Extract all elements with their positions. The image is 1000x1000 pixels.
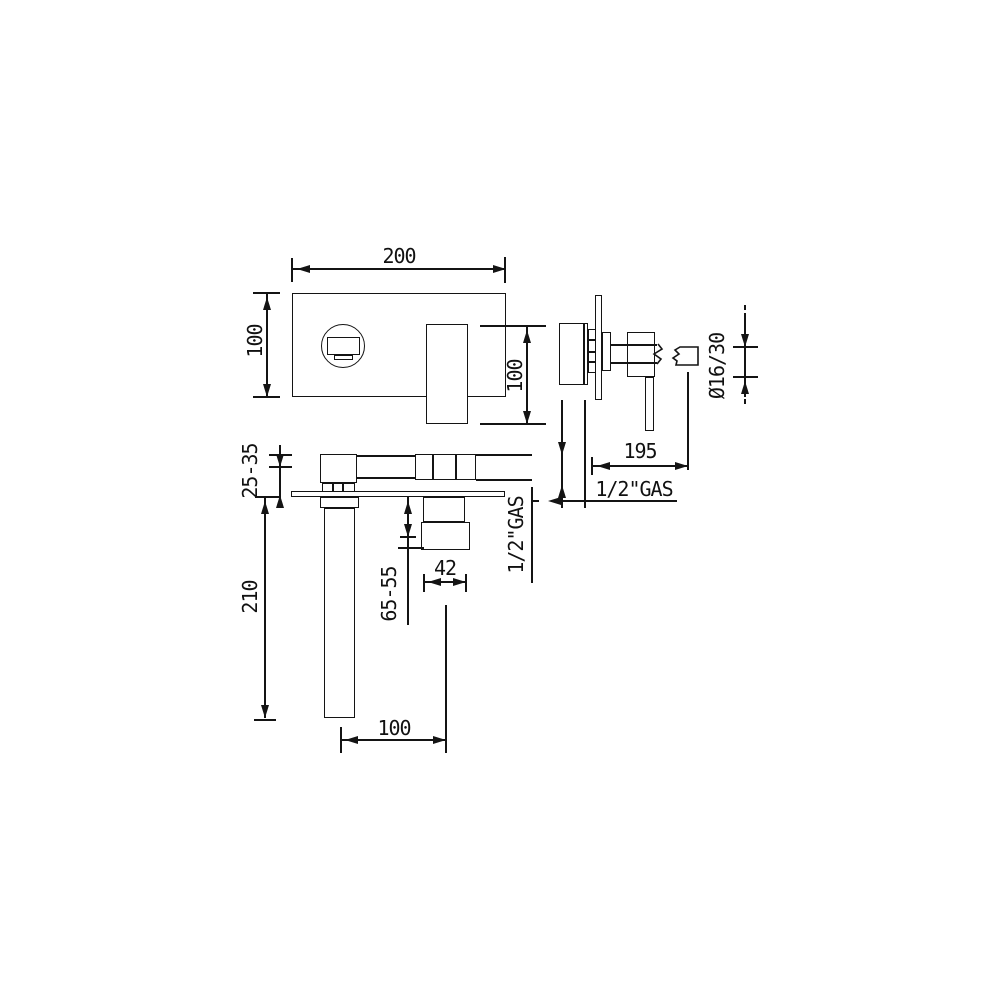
installation-body-depth-label: 65-55 <box>379 566 399 621</box>
connector-line <box>588 351 596 353</box>
side-wall-plate <box>595 295 602 400</box>
spout-collar <box>320 497 359 508</box>
arrow <box>341 736 358 744</box>
arrow <box>593 462 610 470</box>
side-spout-section-label: Ø16/30 <box>707 333 727 399</box>
body-divider <box>432 454 434 480</box>
dim-ext <box>687 372 689 470</box>
arrow <box>404 497 412 514</box>
dim-ext <box>445 605 447 753</box>
dash <box>744 399 746 404</box>
spout-base-profile <box>320 454 357 483</box>
connector-line <box>588 339 596 341</box>
installation-axis-distance-label: 100 <box>377 718 410 738</box>
aerator-face <box>327 337 360 355</box>
arrow <box>675 462 692 470</box>
arrow <box>276 491 284 508</box>
arrow <box>261 497 269 514</box>
installation-plaster-range-label: 25-35 <box>240 443 260 498</box>
installation-supply-thread-label: 1/2"GAS <box>506 496 526 573</box>
dim-line-65-55 <box>407 497 409 625</box>
leader-line-gas-vertical <box>531 487 533 583</box>
technical-drawing: 200 100 100 195 Ø16/30 1/2"GAS 1/2"GAS 2… <box>0 0 1000 1000</box>
tube-line <box>357 455 415 457</box>
arrow <box>558 481 566 498</box>
dim-ext <box>480 423 546 425</box>
break-lines-svg <box>0 0 1000 1000</box>
dim-line-200 <box>293 268 506 270</box>
spout-flange-side <box>602 332 611 371</box>
dim-ext <box>400 536 416 538</box>
arrow <box>523 411 531 428</box>
side-spout-reach-label: 195 <box>623 441 656 461</box>
dash <box>744 305 746 310</box>
front-handle-height-label: 100 <box>505 359 525 392</box>
side-supply-thread-label: 1/2"GAS <box>595 479 672 499</box>
front-plate-height-label: 100 <box>245 324 265 357</box>
arrow <box>544 497 561 505</box>
body-inner-line <box>583 323 585 385</box>
arrow <box>276 454 284 471</box>
handle-lever-side <box>645 377 654 431</box>
installation-body-width-label: 42 <box>434 558 456 578</box>
mixer-handle-front <box>426 324 468 424</box>
dim-ext <box>480 325 546 327</box>
arrow <box>261 705 269 722</box>
arrow <box>493 265 510 273</box>
handle-boss-side <box>627 332 655 377</box>
supply-stub <box>476 454 532 456</box>
arrow <box>404 524 412 541</box>
mixer-body-profile <box>415 454 476 480</box>
connector-line <box>588 361 596 363</box>
arrow <box>741 334 749 351</box>
valve-neck <box>423 497 465 522</box>
supply-extension-line <box>584 400 586 508</box>
arrow <box>263 293 271 310</box>
dim-ext <box>398 547 424 549</box>
supply-stub <box>476 479 532 481</box>
tube-line <box>357 477 415 479</box>
spout-downpipe <box>324 508 355 718</box>
dim-line-210 <box>264 497 266 718</box>
arrow <box>433 736 450 744</box>
arrow <box>523 326 531 343</box>
aerator-tab <box>334 355 353 360</box>
arrow <box>263 384 271 401</box>
front-plate-width-label: 200 <box>382 246 415 266</box>
valve-box <box>421 522 470 550</box>
arrow <box>558 442 566 459</box>
installation-spout-drop-label: 210 <box>240 580 260 613</box>
arrow <box>741 377 749 394</box>
arrow <box>293 265 310 273</box>
body-divider <box>455 454 457 480</box>
